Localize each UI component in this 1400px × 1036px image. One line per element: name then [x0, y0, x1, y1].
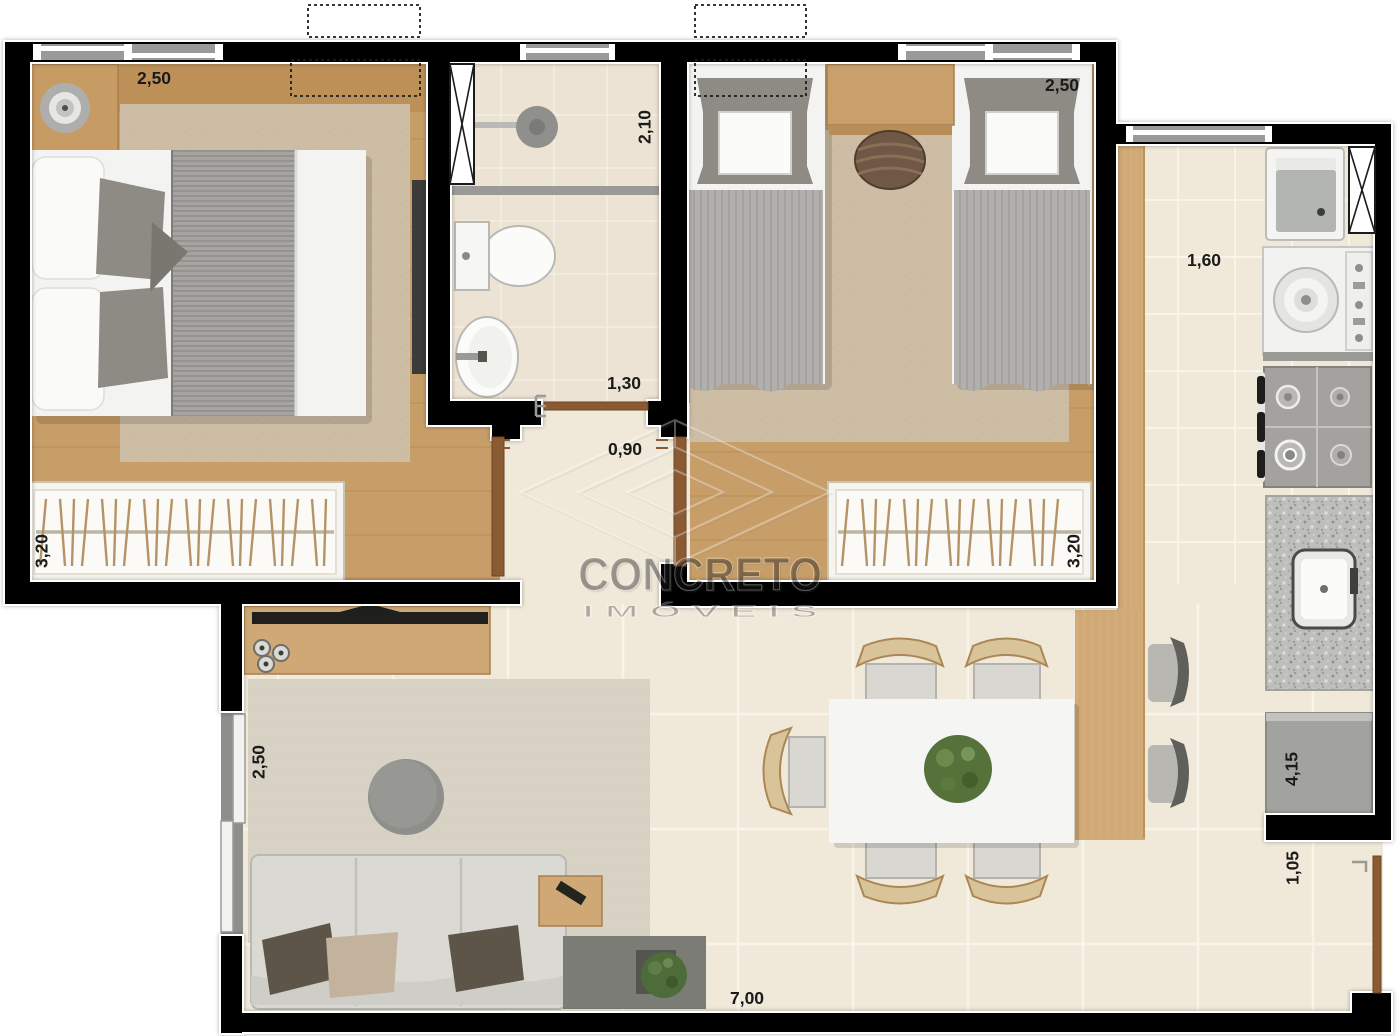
svg-text:1,60: 1,60	[1187, 250, 1221, 270]
svg-text:1,30: 1,30	[607, 373, 641, 393]
svg-text:2,50: 2,50	[1045, 75, 1079, 95]
svg-text:0,90: 0,90	[608, 439, 642, 459]
svg-text:1,05: 1,05	[1283, 851, 1303, 885]
svg-text:7,00: 7,00	[730, 988, 764, 1008]
svg-text:I M Ó V E I S: I M Ó V E I S	[583, 602, 818, 621]
svg-text:3,20: 3,20	[1064, 534, 1084, 568]
svg-text:2,50: 2,50	[249, 745, 269, 779]
svg-text:CONCRETO: CONCRETO	[578, 548, 822, 600]
svg-text:3,20: 3,20	[32, 534, 52, 568]
svg-text:4,15: 4,15	[1282, 752, 1302, 786]
svg-text:2,10: 2,10	[635, 110, 655, 144]
svg-text:2,50: 2,50	[137, 68, 171, 88]
